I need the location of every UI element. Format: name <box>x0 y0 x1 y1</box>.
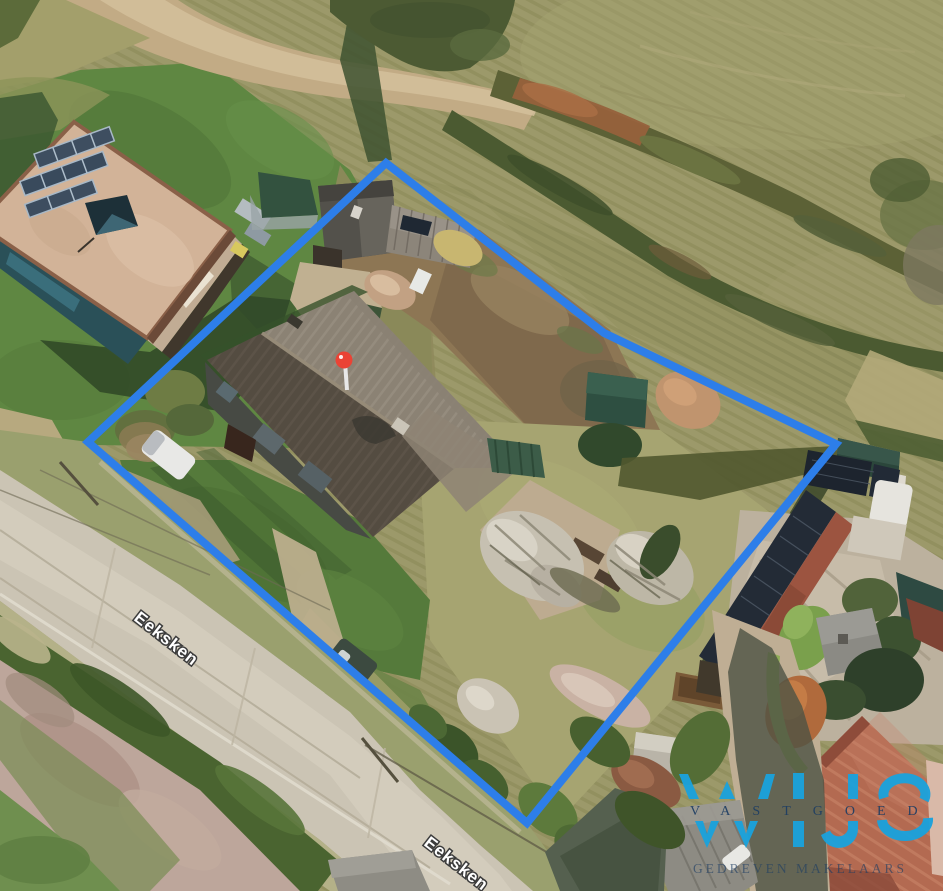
svg-text:GEDREVEN MAKELAARS: GEDREVEN MAKELAARS <box>693 861 907 876</box>
svg-text:VASTGOED: VASTGOED <box>690 804 940 819</box>
